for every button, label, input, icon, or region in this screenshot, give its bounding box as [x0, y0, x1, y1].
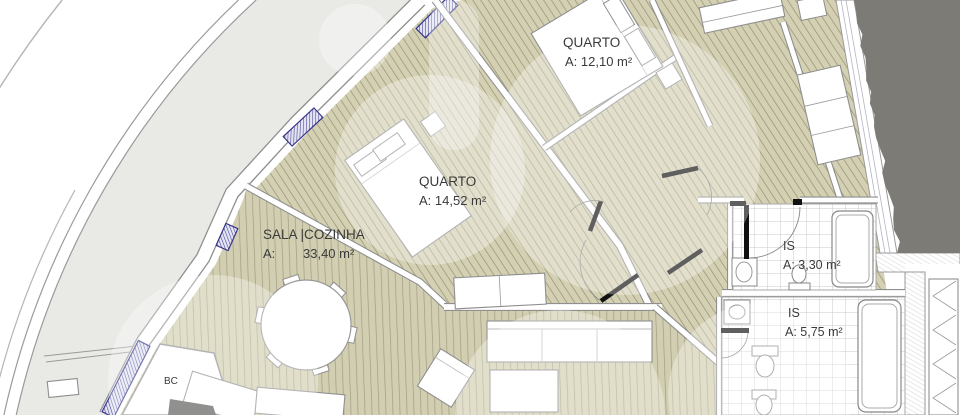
svg-text:A: 12,10 m²: A: 12,10 m² [565, 54, 633, 69]
svg-text:A: 14,52 m²: A: 14,52 m² [419, 193, 487, 208]
svg-text:QUARTO: QUARTO [419, 174, 476, 189]
svg-text:A:: A: [263, 246, 275, 261]
svg-text:A: 5,75 m²: A: 5,75 m² [785, 325, 843, 339]
svg-text:A: 3,30 m²: A: 3,30 m² [783, 258, 841, 272]
svg-text:33,40 m²: 33,40 m² [303, 246, 355, 261]
svg-text:IS: IS [788, 306, 800, 320]
svg-text:IS: IS [783, 239, 795, 253]
svg-text:BC: BC [164, 376, 178, 387]
svg-text:QUARTO: QUARTO [563, 35, 620, 50]
svg-text:SALA |COZINHA: SALA |COZINHA [263, 227, 365, 242]
